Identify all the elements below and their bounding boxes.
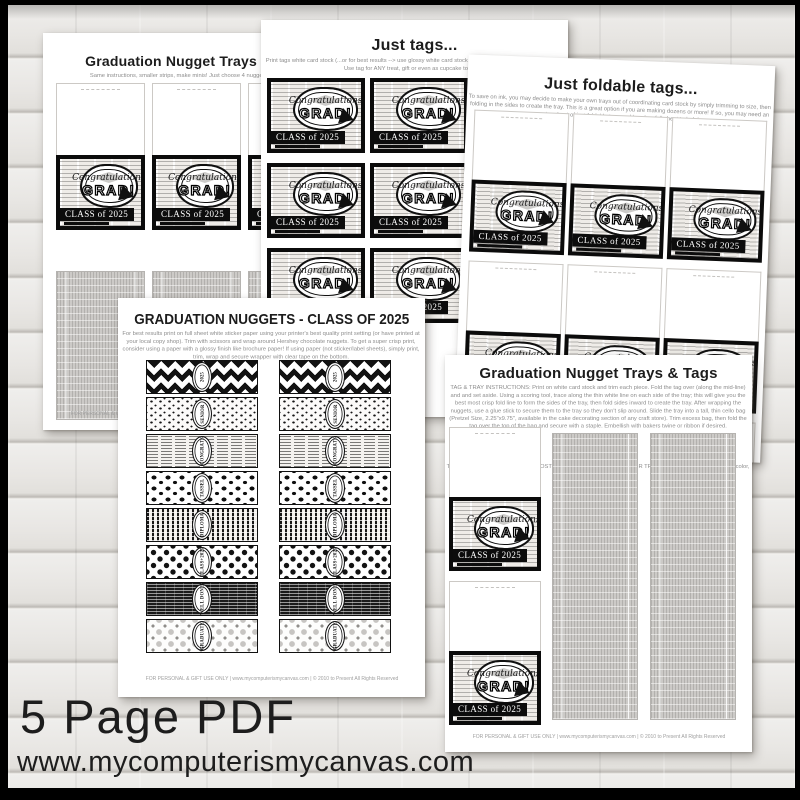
nugget-wrapper-strip: WELL DONE! xyxy=(279,582,391,616)
tag-class-banner: CLASS of 2025 xyxy=(270,216,345,229)
wrapper-label-text: DIPLOMA xyxy=(199,513,204,537)
grad-tag: Congratulations GRAD! CLASS of 2025 xyxy=(449,497,541,571)
tall-tray-pieces xyxy=(552,433,736,725)
page-title-text: GRADUATION NUGGETS - CLASS OF 2025 xyxy=(134,311,409,328)
tag-grad-text: GRAD! xyxy=(477,525,530,540)
nugget-wrapper-strip: 2025 xyxy=(146,360,258,394)
grad-tag: Congratulations GRAD! CLASS of 2025 xyxy=(152,155,241,230)
page-title: Just tags... xyxy=(261,37,568,55)
wrapper-label-text: CONGRATS xyxy=(199,437,204,465)
wrapper-oval-label: TASSEL xyxy=(192,473,212,503)
tag-fold-area xyxy=(664,268,762,342)
foldable-tag-piece: Congratulations GRAD! CLASS of 2025 xyxy=(469,110,569,256)
grad-tag: Congratulations GRAD! CLASS of 2025 xyxy=(267,163,365,238)
wrapper-oval-label: CLASS+2025 xyxy=(325,547,345,577)
tag-fold-area xyxy=(565,264,663,338)
tag-class-banner: CLASS of 2025 xyxy=(670,237,746,253)
tag-fold-area xyxy=(466,260,564,334)
tag-fold-area xyxy=(472,110,570,184)
tag-class-banner: CLASS of 2025 xyxy=(59,208,134,221)
wrapper-label-text: WELL DONE! xyxy=(332,583,337,615)
tag-grad-text: GRAD! xyxy=(299,276,352,291)
tag-fold-area xyxy=(571,113,669,187)
wrapper-label-text: WELL DONE! xyxy=(199,583,204,615)
tag-grad-text: GRAD! xyxy=(477,679,530,694)
speech-bubble: Congratulations GRAD! xyxy=(293,257,358,301)
nugget-wrapper-strip: DIPLOMA xyxy=(146,508,258,542)
wrapper-label-text: TASSEL xyxy=(199,479,204,498)
wrapper-oval-label: WELL DONE! xyxy=(192,584,212,614)
wrapper-oval-label: 2025 xyxy=(192,362,212,392)
tag-grad-text: GRAD! xyxy=(500,208,554,225)
speech-bubble: Congratulations GRAD! xyxy=(474,660,534,704)
wrapper-oval-label: WELL DONE! xyxy=(325,584,345,614)
tag-grad-text: GRAD! xyxy=(82,183,135,198)
wrapper-oval-label: DIPLOMA xyxy=(325,510,345,540)
tag-class-banner: CLASS of 2025 xyxy=(571,233,647,249)
page-title: GRADUATION NUGGETS - CLASS OF 2025 xyxy=(118,311,425,328)
nugget-wrapper-strip: CLASS+2025 xyxy=(279,545,391,579)
tag-class-banner: CLASS of 2025 xyxy=(270,131,345,144)
wrapper-label-text: SENIOR xyxy=(332,404,337,423)
nugget-wrapper-strip: CONGRATS xyxy=(279,434,391,468)
speech-bubble: Congratulations GRAD! xyxy=(293,87,358,131)
tag-class-banner: CLASS of 2025 xyxy=(155,208,230,221)
tag-fold-area xyxy=(56,83,145,155)
website-url: www.mycomputerismycanvas.com xyxy=(17,745,474,780)
wrapper-oval-label: CONGRATS xyxy=(325,436,345,466)
wrapper-label-text: 2025 xyxy=(199,372,204,382)
wrapper-label-text: CLASS+2025 xyxy=(332,547,337,576)
wrapper-oval-label: CONGRATS xyxy=(192,436,212,466)
trays-body: Congratulations GRAD! CLASS of 2025 C xyxy=(449,427,744,725)
foldable-pieces-column: Congratulations GRAD! CLASS of 2025 C xyxy=(449,427,541,725)
page-subtitle: For best results print on full sheet whi… xyxy=(118,330,424,361)
foldable-tag-piece: Congratulations GRAD! CLASS of 2025 xyxy=(56,83,145,230)
wrapper-label-text: DIPLOMA xyxy=(332,513,337,537)
wrapper-oval-label: TASSEL xyxy=(325,473,345,503)
speech-bubble: Congratulations GRAD! xyxy=(495,190,559,235)
tray-wrap-piece xyxy=(650,433,736,720)
grad-tag: Congratulations GRAD! CLASS of 2025 xyxy=(370,78,468,153)
wrapper-oval-label: SENIOR xyxy=(325,399,345,429)
tag-grad-text: GRAD! xyxy=(698,216,752,233)
page-count-caption: 5 Page PDF xyxy=(20,693,474,740)
wrapper-oval-label: GRADUATE xyxy=(325,621,345,651)
nugget-wrapper-strip: CLASS+2025 xyxy=(146,545,258,579)
page-footer: FOR PERSONAL & GIFT USE ONLY | www.mycom… xyxy=(118,676,425,682)
tag-grad-text: GRAD! xyxy=(299,106,352,121)
tag-class-banner: CLASS of 2025 xyxy=(452,549,527,562)
speech-bubble: Congratulations GRAD! xyxy=(396,257,461,301)
tag-fold-area xyxy=(449,427,541,497)
speech-bubble: Congratulations GRAD! xyxy=(396,87,461,131)
wrapper-label-text: TASSEL xyxy=(332,479,337,498)
wrapper-label-text: 2025 xyxy=(332,372,337,382)
nugget-wrapper-strip: TASSEL xyxy=(279,471,391,505)
wrapper-label-text: CLASS+2025 xyxy=(199,547,204,576)
wrapper-oval-label: 2025 xyxy=(325,362,345,392)
nugget-wrapper-strip: GRADUATE xyxy=(146,619,258,653)
wrapper-strip-column-left: 2025 SENIOR CONGRATS TASSEL xyxy=(146,360,258,653)
nugget-wrapper-strip: SENIOR xyxy=(146,397,258,431)
tag-class-banner: CLASS of 2025 xyxy=(472,230,548,246)
wrapper-oval-label: DIPLOMA xyxy=(192,510,212,540)
tag-grad-text: GRAD! xyxy=(599,212,653,229)
tag-grad-text: GRAD! xyxy=(299,191,352,206)
grad-tag: Congratulations GRAD! CLASS of 2025 xyxy=(370,163,468,238)
wrapper-label-text: CONGRATS xyxy=(332,437,337,465)
listing-caption: 5 Page PDF www.mycomputerismycanvas.com xyxy=(20,693,474,780)
grad-tag: Congratulations GRAD! CLASS of 2025 xyxy=(267,78,365,153)
wrapper-strips-area: 2025 SENIOR CONGRATS TASSEL xyxy=(146,360,391,653)
speech-bubble: Congratulations GRAD! xyxy=(594,193,658,238)
speech-bubble: Congratulations GRAD! xyxy=(693,197,757,242)
nugget-wrapper-strip: DIPLOMA xyxy=(279,508,391,542)
nugget-wrapper-strip: SENIOR xyxy=(279,397,391,431)
tag-class-banner: CLASS of 2025 xyxy=(373,131,448,144)
tag-grad-text: GRAD! xyxy=(402,191,455,206)
nugget-wrapper-strip: 2025 xyxy=(279,360,391,394)
wrapper-label-text: GRADUATE xyxy=(332,622,337,650)
grad-tag: Congratulations GRAD! CLASS of 2025 xyxy=(469,180,567,256)
tag-class-banner: CLASS of 2025 xyxy=(373,216,448,229)
tag-grad-text: GRAD! xyxy=(402,106,455,121)
speech-bubble: Congratulations GRAD! xyxy=(80,164,138,208)
nugget-wrapper-strip: TASSEL xyxy=(146,471,258,505)
nugget-wrapper-strip: GRADUATE xyxy=(279,619,391,653)
tag-fold-area xyxy=(449,581,541,651)
nugget-wrapper-strip: WELL DONE! xyxy=(146,582,258,616)
page-nugget-trays-tags: Graduation Nugget Trays & Tags TAG & TRA… xyxy=(445,355,752,752)
tag-grad-text: GRAD! xyxy=(178,183,231,198)
wrapper-label-text: GRADUATE xyxy=(199,622,204,650)
page-footer: FOR PERSONAL & GIFT USE ONLY | www.mycom… xyxy=(445,734,752,740)
foldable-tag-piece: Congratulations GRAD! CLASS of 2025 xyxy=(449,427,541,571)
tray-wrap-piece xyxy=(552,433,638,720)
tag-fold-area xyxy=(670,117,768,191)
wrapper-oval-label: CLASS+2025 xyxy=(192,547,212,577)
foldable-tag-piece: Congratulations GRAD! CLASS of 2025 xyxy=(152,83,241,230)
page-graduation-nuggets: GRADUATION NUGGETS - CLASS OF 2025 For b… xyxy=(118,298,425,697)
foldable-tag-piece: Congratulations GRAD! CLASS of 2025 xyxy=(568,113,668,259)
wood-background: Graduation Nugget Trays & Tags Same inst… xyxy=(8,5,795,788)
speech-bubble: Congratulations GRAD! xyxy=(176,164,234,208)
wrapper-strip-column-right: 2025 SENIOR CONGRATS TASSEL xyxy=(279,360,391,653)
wrapper-oval-label: GRADUATE xyxy=(192,621,212,651)
tag-fold-area xyxy=(152,83,241,155)
wrapper-oval-label: SENIOR xyxy=(192,399,212,429)
speech-bubble: Congratulations GRAD! xyxy=(396,172,461,216)
speech-bubble: Congratulations GRAD! xyxy=(293,172,358,216)
page-title: Graduation Nugget Trays & Tags xyxy=(445,365,752,382)
grad-tag: Congratulations GRAD! CLASS of 2025 xyxy=(667,187,765,263)
nugget-wrapper-strip: CONGRATS xyxy=(146,434,258,468)
page-instructions: TAG & TRAY INSTRUCTIONS: Print on white … xyxy=(445,384,751,430)
foldable-tag-piece: Congratulations GRAD! CLASS of 2025 xyxy=(667,117,767,263)
tag-grad-text: GRAD! xyxy=(402,276,455,291)
wrapper-label-text: SENIOR xyxy=(199,404,204,423)
speech-bubble: Congratulations GRAD! xyxy=(474,506,534,550)
grad-tag: Congratulations GRAD! CLASS of 2025 xyxy=(56,155,145,230)
grad-tag: Congratulations GRAD! CLASS of 2025 xyxy=(568,183,666,259)
